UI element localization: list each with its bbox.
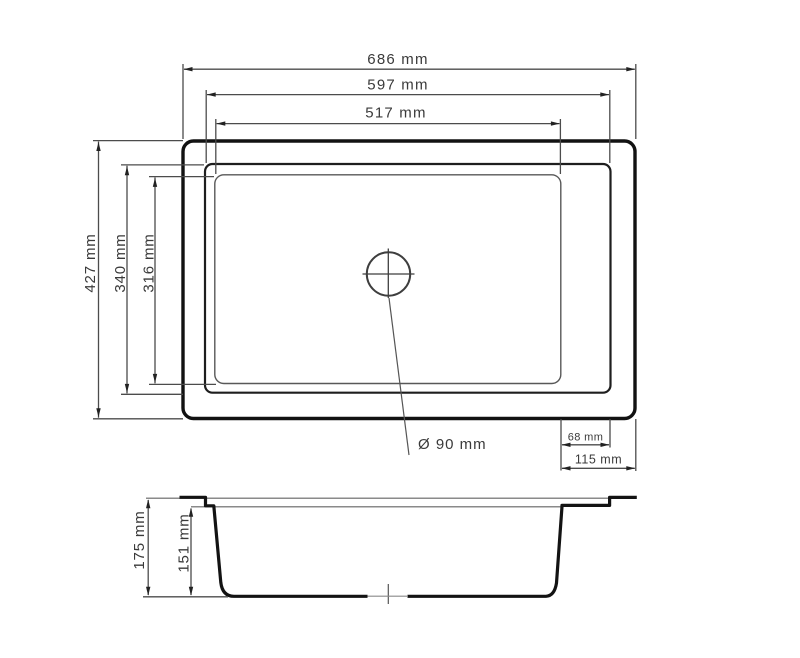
svg-text:316 mm: 316 mm <box>141 233 158 292</box>
svg-text:68 mm: 68 mm <box>568 432 604 444</box>
svg-text:175 mm: 175 mm <box>131 510 148 569</box>
svg-text:427 mm: 427 mm <box>82 233 99 292</box>
svg-text:340 mm: 340 mm <box>112 233 129 292</box>
svg-text:517 mm: 517 mm <box>365 105 426 122</box>
svg-text:115 mm: 115 mm <box>575 453 622 467</box>
svg-text:Ø 90 mm: Ø 90 mm <box>418 436 487 453</box>
svg-text:597 mm: 597 mm <box>367 77 428 94</box>
svg-text:151 mm: 151 mm <box>175 513 192 572</box>
svg-text:686 mm: 686 mm <box>367 51 428 68</box>
